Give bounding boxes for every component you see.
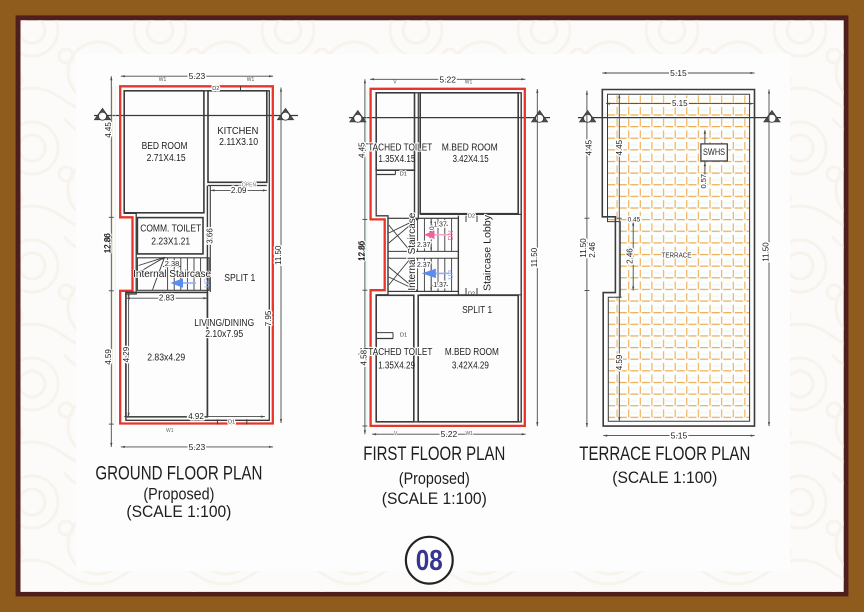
svg-text:0.57: 0.57 (699, 174, 708, 189)
svg-text:TERRACE: TERRACE (662, 252, 692, 259)
svg-text:2.10x7.95: 2.10x7.95 (205, 329, 243, 340)
svg-text:(SCALE 1:100): (SCALE 1:100) (126, 503, 231, 521)
svg-text:12.80: 12.80 (104, 233, 113, 254)
svg-text:2.11X3.10: 2.11X3.10 (219, 137, 258, 148)
svg-text:1.35X4.15: 1.35X4.15 (378, 154, 415, 165)
svg-text:4.59: 4.59 (104, 349, 113, 365)
svg-text:TERRACE FLOOR PLAN: TERRACE FLOOR PLAN (579, 443, 750, 465)
svg-text:(Proposed): (Proposed) (399, 470, 470, 488)
svg-text:(SCALE 1:100): (SCALE 1:100) (382, 490, 487, 508)
svg-text:2.83: 2.83 (159, 294, 175, 303)
svg-text:KITCHEN: KITCHEN (217, 126, 258, 137)
svg-text:W1: W1 (465, 80, 473, 86)
svg-text:1.37: 1.37 (433, 282, 447, 289)
svg-text:5.15: 5.15 (670, 68, 687, 78)
svg-text:5.15: 5.15 (671, 431, 688, 441)
svg-text:3.66: 3.66 (206, 228, 215, 244)
svg-text:SPLIT 1: SPLIT 1 (462, 305, 492, 316)
svg-text:5.15: 5.15 (672, 99, 688, 108)
svg-text:W1: W1 (465, 431, 473, 437)
svg-text:4.45: 4.45 (585, 139, 594, 155)
svg-text:08: 08 (416, 545, 443, 577)
svg-text:BED ROOM: BED ROOM (142, 141, 188, 152)
svg-text:2.37: 2.37 (417, 262, 431, 269)
svg-text:SPLIT 1: SPLIT 1 (224, 273, 255, 284)
svg-text:LIVING/DINING: LIVING/DINING (194, 318, 254, 329)
svg-text:12.80: 12.80 (358, 241, 367, 262)
svg-text:D2: D2 (468, 213, 475, 219)
svg-text:ATTACHED TOILET: ATTACHED TOILET (358, 347, 432, 358)
svg-text:11.50: 11.50 (762, 242, 771, 262)
svg-text:M.BED ROOM: M.BED ROOM (445, 347, 499, 358)
svg-text:5.22: 5.22 (439, 74, 456, 84)
svg-text:3.42X4.29: 3.42X4.29 (452, 360, 489, 371)
svg-text:4.29: 4.29 (122, 346, 131, 362)
svg-text:2.37: 2.37 (417, 242, 431, 249)
svg-text:D1: D1 (228, 420, 235, 426)
svg-text:7.95: 7.95 (264, 310, 273, 326)
svg-text:2.71X4.15: 2.71X4.15 (147, 153, 186, 164)
svg-text:4.45: 4.45 (358, 142, 367, 158)
svg-text:2.46: 2.46 (588, 242, 597, 258)
svg-text:SWHS: SWHS (703, 147, 725, 158)
svg-text:COMM. TOILET: COMM. TOILET (140, 224, 201, 235)
svg-text:4.45: 4.45 (615, 139, 624, 155)
svg-text:Internal Staircase: Internal Staircase (407, 212, 418, 290)
svg-text:(SCALE 1:100): (SCALE 1:100) (612, 469, 717, 487)
svg-text:W1: W1 (159, 77, 167, 83)
svg-text:11.50: 11.50 (274, 245, 283, 265)
svg-text:11.50: 11.50 (579, 238, 588, 258)
svg-text:5.23: 5.23 (189, 442, 206, 452)
svg-text:OPEN: OPEN (242, 183, 257, 189)
svg-text:4.45: 4.45 (104, 122, 113, 138)
svg-text:D1: D1 (400, 171, 407, 177)
svg-text:4.59: 4.59 (615, 354, 624, 370)
svg-text:2.46: 2.46 (626, 248, 635, 264)
svg-text:M.BED ROOM: M.BED ROOM (442, 142, 498, 153)
svg-text:2.38: 2.38 (165, 259, 180, 268)
svg-text:5.22: 5.22 (441, 429, 458, 439)
svg-text:4.92: 4.92 (188, 412, 204, 421)
svg-text:Staircase Lobby: Staircase Lobby (483, 215, 494, 291)
svg-text:ATTACHED TOILET: ATTACHED TOILET (358, 142, 432, 153)
svg-text:W1: W1 (166, 428, 174, 434)
svg-text:DN: DN (448, 230, 455, 240)
svg-text:UP: UP (204, 278, 211, 288)
svg-text:FIRST FLOOR PLAN: FIRST FLOOR PLAN (363, 443, 505, 465)
svg-text:D2: D2 (212, 86, 219, 92)
svg-text:2.23X1.21: 2.23X1.21 (151, 236, 190, 247)
svg-text:Internal Staircase: Internal Staircase (133, 269, 211, 280)
svg-text:11.50: 11.50 (530, 247, 539, 267)
svg-text:4.58: 4.58 (359, 349, 368, 365)
svg-text:D1: D1 (400, 333, 407, 339)
svg-text:GROUND FLOOR PLAN: GROUND FLOOR PLAN (95, 462, 262, 484)
svg-text:W1: W1 (247, 77, 255, 83)
svg-text:0.45: 0.45 (628, 217, 641, 224)
svg-text:1.35X4.29: 1.35X4.29 (378, 360, 415, 371)
svg-text:(Proposed): (Proposed) (143, 486, 214, 504)
svg-text:3.42X4.15: 3.42X4.15 (453, 154, 489, 165)
svg-text:2.83x4.29: 2.83x4.29 (147, 353, 185, 364)
svg-text:5.23: 5.23 (189, 71, 206, 81)
svg-text:UP: UP (448, 270, 455, 280)
